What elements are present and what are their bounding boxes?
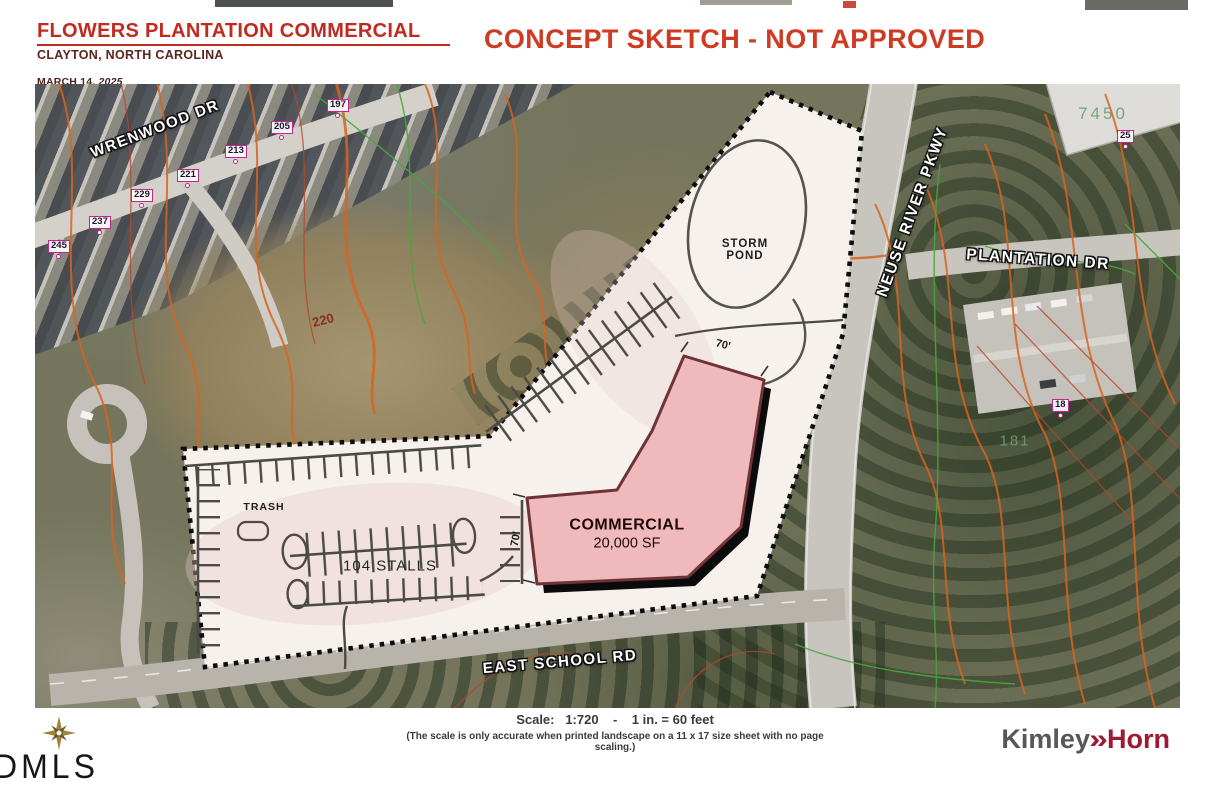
concept-sketch-page: FLOWERS PLANTATION COMMERCIAL CLAYTON, N… <box>0 0 1224 792</box>
address-value: 229 <box>131 189 153 202</box>
address-dot-icon <box>56 254 61 259</box>
site-plan-drawing <box>35 84 1180 708</box>
address-dot-icon <box>97 230 102 235</box>
parcel-number-181: 181 <box>999 433 1030 450</box>
logo-chevron-icon: » <box>1089 724 1108 755</box>
page-location: CLAYTON, NORTH CAROLINA <box>37 48 450 62</box>
storm-pond-line2: POND <box>722 250 768 262</box>
photo-scrap <box>700 0 792 5</box>
address-dot-icon <box>139 203 144 208</box>
stall-count-label: 104 STALLS <box>343 558 437 575</box>
page-title: FLOWERS PLANTATION COMMERCIAL <box>37 20 450 46</box>
address-dot-icon <box>335 113 340 118</box>
address-dot-icon <box>1058 413 1063 418</box>
address-marker: 245 <box>48 235 70 259</box>
address-marker: 221 <box>177 164 199 188</box>
address-value: 197 <box>327 99 349 112</box>
aerial-map: WRENWOOD DR NEUSE RIVER PKWY PLANTATION … <box>35 84 1180 708</box>
photo-scrap <box>215 0 393 7</box>
address-marker: 18 <box>1052 394 1069 418</box>
photo-scrap <box>1085 0 1188 10</box>
trash-label: TRASH <box>243 501 284 513</box>
commercial-label-area: 20,000 SF <box>569 536 684 552</box>
scale-text: Scale: 1:720 - 1 in. = 60 feet <box>400 712 830 727</box>
address-dot-icon <box>1123 144 1128 149</box>
scale-block: Scale: 1:720 - 1 in. = 60 feet (The scal… <box>400 712 830 753</box>
kimley-horn-logo: Kimley»Horn <box>1001 724 1170 755</box>
commercial-label: COMMERCIAL 20,000 SF <box>569 517 684 552</box>
address-value: 205 <box>271 121 293 134</box>
address-marker: 25 <box>1117 125 1134 149</box>
address-dot-icon <box>233 159 238 164</box>
title-block: FLOWERS PLANTATION COMMERCIAL CLAYTON, N… <box>37 20 450 88</box>
logo-horn-text: Horn <box>1107 724 1170 754</box>
address-value: 18 <box>1052 399 1069 412</box>
address-value: 25 <box>1117 130 1134 143</box>
address-value: 221 <box>177 169 199 182</box>
storm-pond-label: STORM POND <box>722 238 768 262</box>
logo-kimley-text: Kimley <box>1001 724 1090 754</box>
commercial-label-title: COMMERCIAL <box>569 517 684 535</box>
address-value: 213 <box>225 145 247 158</box>
address-marker: 197 <box>327 94 349 118</box>
parcel-number-7450: 7450 <box>1078 104 1128 124</box>
address-marker: 229 <box>131 184 153 208</box>
not-approved-banner: CONCEPT SKETCH - NOT APPROVED <box>484 24 985 55</box>
dmls-watermark: DMLS <box>0 747 99 787</box>
address-dot-icon <box>279 135 284 140</box>
scale-note: (The scale is only accurate when printed… <box>400 731 830 753</box>
storm-pond-line1: STORM <box>722 238 768 250</box>
address-dot-icon <box>185 183 190 188</box>
address-marker: 213 <box>225 140 247 164</box>
address-marker: 205 <box>271 116 293 140</box>
address-value: 237 <box>89 216 111 229</box>
photo-scrap <box>843 1 856 8</box>
address-marker: 237 <box>89 211 111 235</box>
address-value: 245 <box>48 240 70 253</box>
road-culdesac <box>77 394 151 708</box>
dimension-70ft-left: 70' <box>509 531 523 548</box>
plantation-parking-lot <box>963 283 1137 414</box>
